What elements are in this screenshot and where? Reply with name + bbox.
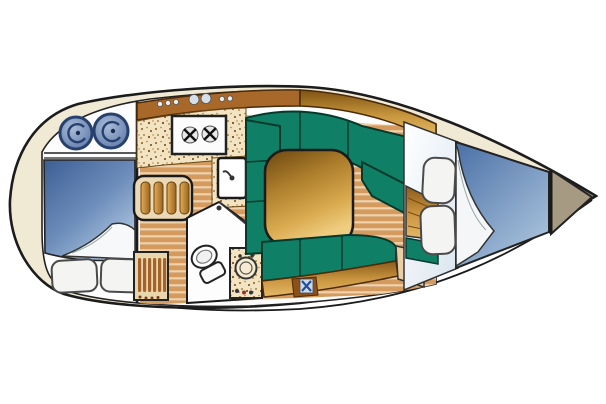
vberth-pillow-top [422,157,456,204]
boat-floorplan-canvas [0,0,606,404]
stove-burner-2 [202,126,218,142]
mast-post [217,206,222,211]
builder-emblem [300,279,313,293]
aft-cabin [44,101,145,303]
vberth-pillow-bottom [420,205,456,254]
stove-burner-1 [182,127,198,143]
aft-swirl-fixture-1 [60,117,92,149]
boat-floorplan [0,0,606,404]
anchor-locker [551,170,592,234]
saloon-table [265,150,353,246]
aft-swirl-fixture-2 [94,114,128,148]
faucet-base [230,176,235,181]
aft-pillow-left [51,259,98,293]
